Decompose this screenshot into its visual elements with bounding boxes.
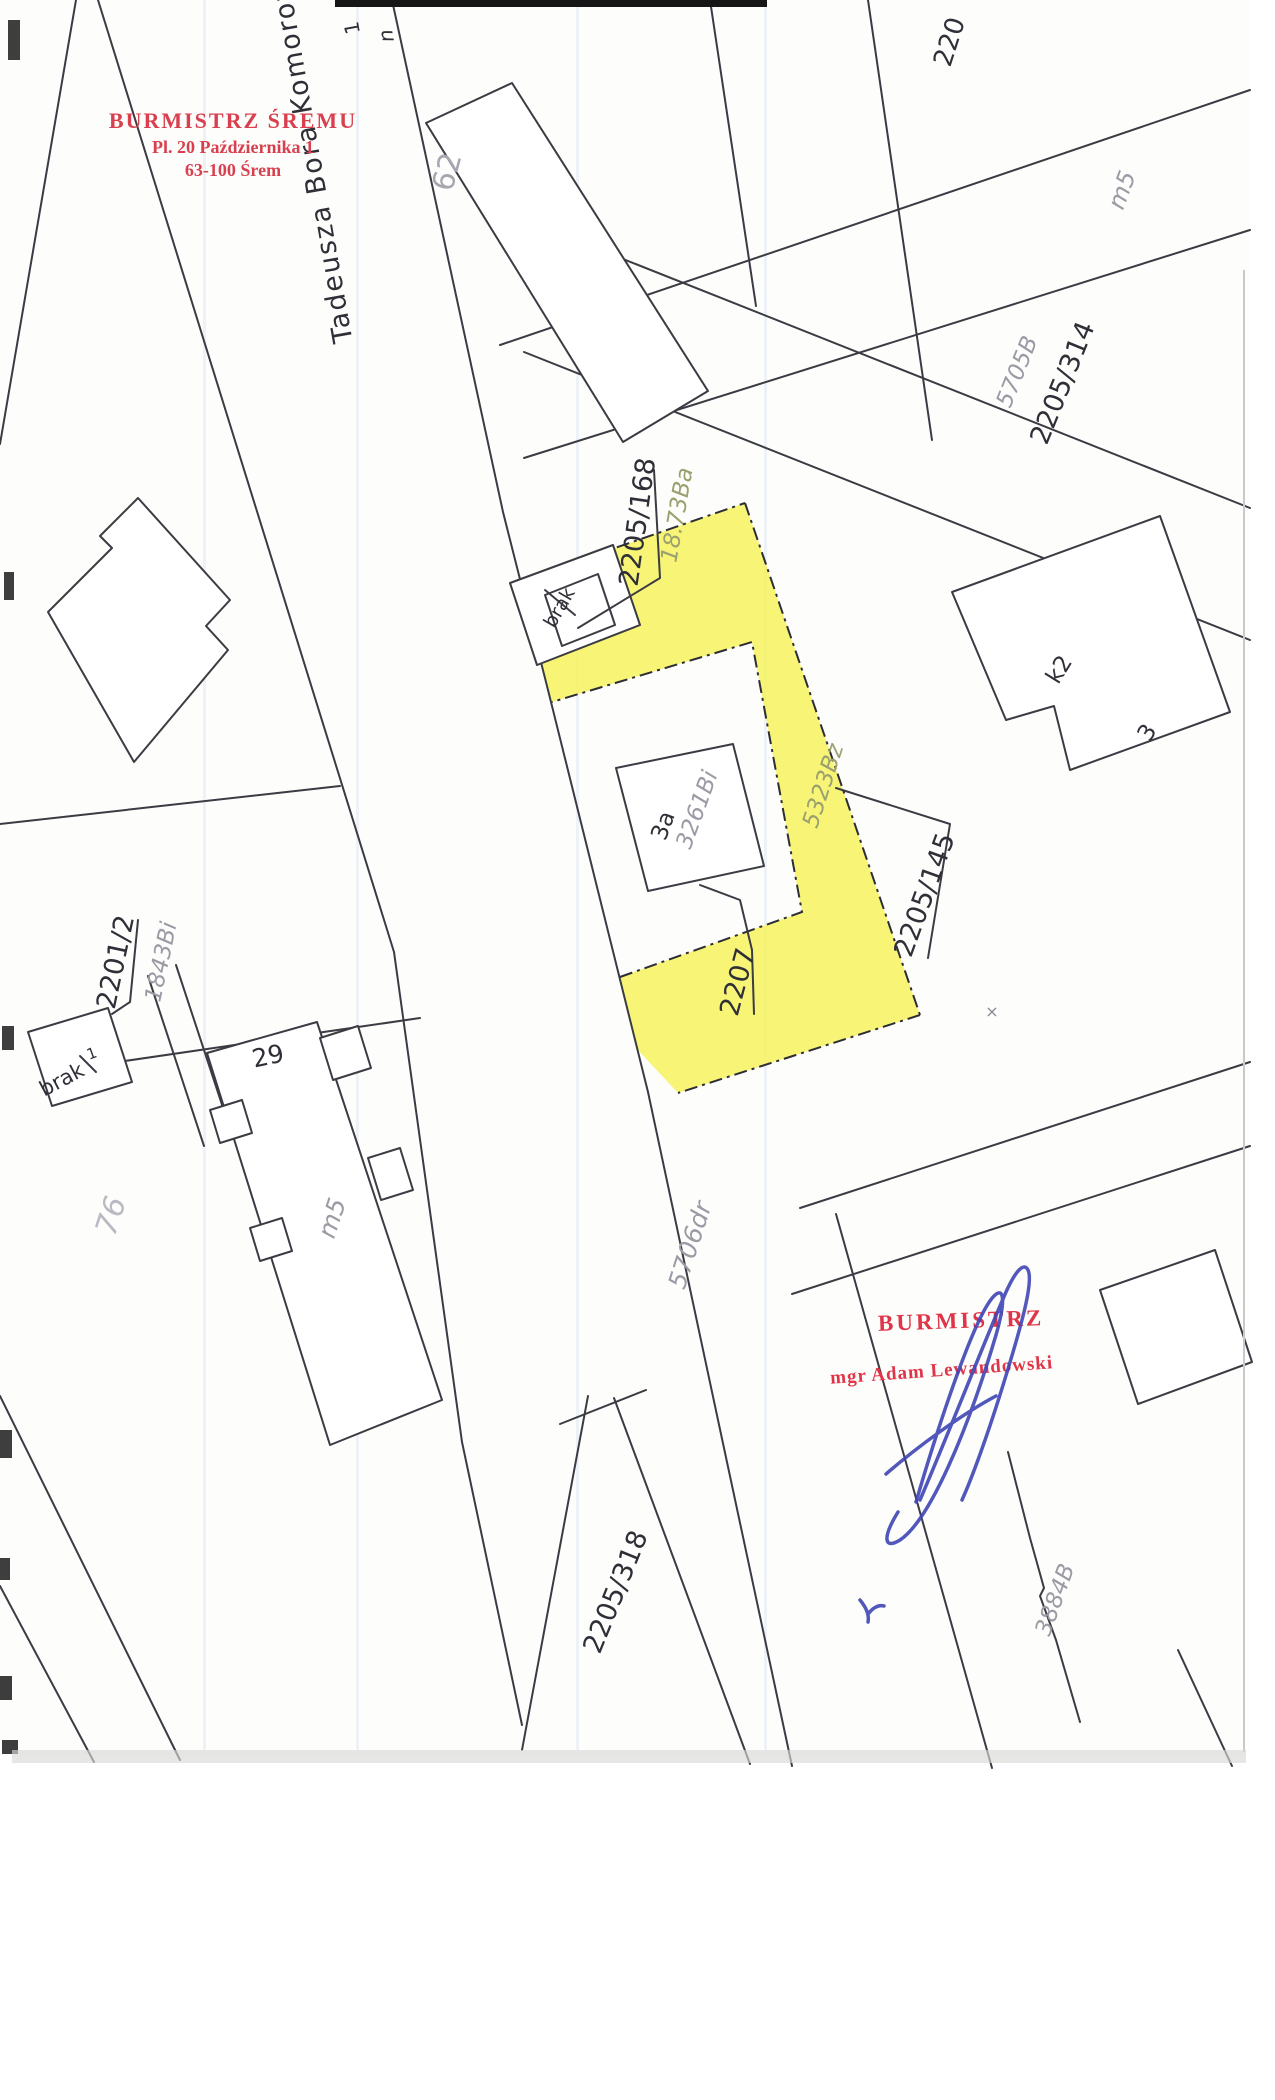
boundary-top-right-1	[868, 0, 932, 440]
stamp-office-title: BURMISTRZ ŚREMU	[108, 108, 358, 134]
boundary-bottom-left-2	[0, 1586, 94, 1762]
building-29-label: 29	[250, 1040, 286, 1071]
building-bottom-right-outline	[1100, 1250, 1252, 1404]
boundary-bottom-left-1	[0, 1396, 180, 1760]
boundary-top-left	[0, 0, 76, 444]
cadastral-map-drawing	[0, 0, 1275, 2100]
building-29-annex-2	[368, 1148, 413, 1200]
building-k2-outline	[952, 516, 1230, 770]
boundary-corner-line	[1178, 1650, 1232, 1766]
stamp-office-city: 63-100 Śrem	[108, 160, 358, 181]
boundary-left-mid	[0, 786, 340, 824]
boundary-top-right-2	[710, 0, 756, 306]
scanned-cadastral-map-page: Tadeusza Bora Komorow 1 n 62 220 m5 5705…	[0, 0, 1275, 2100]
mayor-office-stamp: BURMISTRZ ŚREMU Pl. 20 Października 1 63…	[108, 108, 358, 181]
road-east-edge-lower	[648, 1092, 792, 1766]
building-62-outline	[426, 83, 708, 442]
road-east-edge-mid	[548, 690, 648, 1092]
boundary-bottom-right-1	[836, 1214, 992, 1768]
survey-cross-mark: ×	[985, 1004, 998, 1020]
parcel-318-north-edge	[560, 1390, 646, 1424]
boundary-bottom-right-2	[800, 1062, 1250, 1208]
road-west-edge	[98, 0, 522, 1725]
building-top-left-outline	[48, 498, 230, 762]
stamp-office-address: Pl. 20 Października 1	[108, 137, 358, 158]
